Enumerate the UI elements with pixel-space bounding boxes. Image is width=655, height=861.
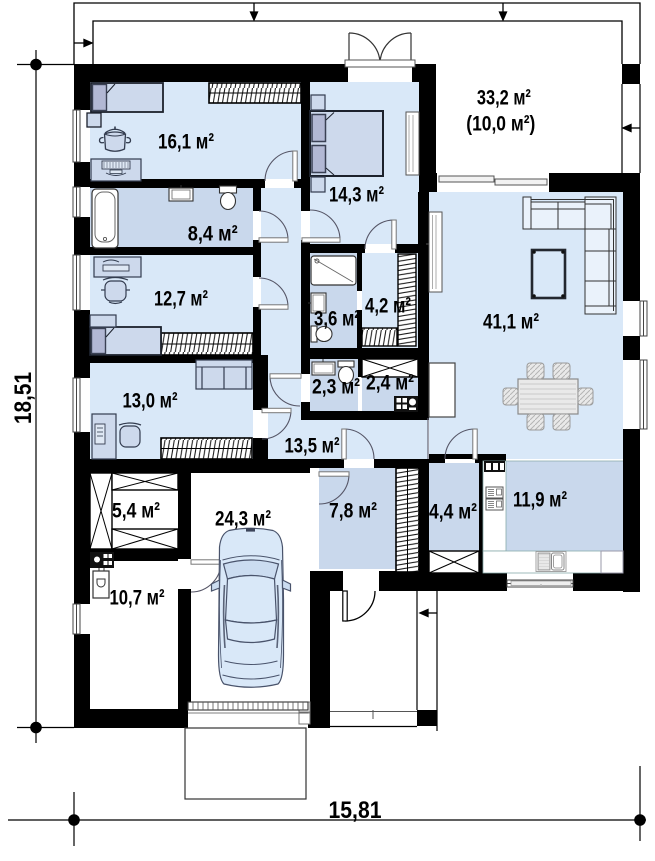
svg-text:10,7 м²: 10,7 м² [110,586,165,610]
svg-text:8,4 м²: 8,4 м² [188,222,238,246]
svg-text:3,6 м²: 3,6 м² [314,307,360,331]
svg-text:13,0 м²: 13,0 м² [123,389,178,413]
svg-text:12,7 м²: 12,7 м² [154,287,208,311]
svg-text:33,2 м²: 33,2 м² [477,86,531,110]
svg-text:13,5 м²: 13,5 м² [285,434,340,458]
svg-text:4,4 м²: 4,4 м² [429,500,477,524]
svg-text:5,4 м²: 5,4 м² [112,499,160,523]
svg-text:2,3 м²: 2,3 м² [312,375,360,399]
svg-text:24,3 м²: 24,3 м² [215,507,271,531]
svg-text:41,1 м²: 41,1 м² [483,310,539,334]
svg-text:4,2 м²: 4,2 м² [365,294,411,318]
svg-text:11,9 м²: 11,9 м² [513,488,567,512]
svg-text:2,4 м²: 2,4 м² [366,371,414,395]
svg-text:14,3 м²: 14,3 м² [329,183,384,207]
svg-text:15,81: 15,81 [329,797,382,824]
svg-text:(10,0 м²): (10,0 м²) [466,111,535,135]
svg-text:18,51: 18,51 [10,372,37,424]
svg-text:7,8 м²: 7,8 м² [329,499,377,523]
svg-text:16,1 м²: 16,1 м² [158,130,214,154]
